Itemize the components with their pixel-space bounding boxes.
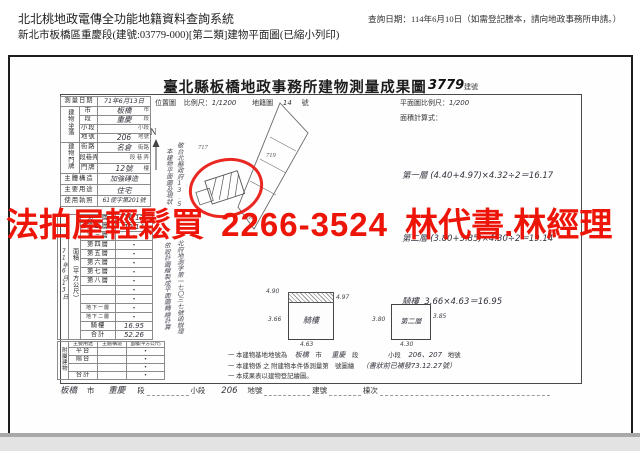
- building-number-unit: 建號: [464, 82, 478, 92]
- site-city-value: 板橋市: [98, 107, 151, 116]
- plan-arcade: 騎樓: [288, 301, 334, 340]
- floor-label: 第六層: [81, 259, 116, 268]
- floor-label: 第八層: [81, 277, 116, 286]
- building-descriptor-table: 測量日期 71年6月13日 建物坐落 市 板橋市 段 重慶段 小段 小段 地號 …: [60, 96, 151, 207]
- use-value: 住宅: [98, 185, 151, 196]
- north-label: N: [150, 127, 157, 137]
- red-ad-watermark: 法拍屋輕鬆買 2266-3524 林代書.林經理: [6, 198, 638, 246]
- floor-label: [81, 295, 116, 304]
- floor-value: ・: [116, 313, 153, 322]
- watermark-text-left: 法拍屋輕鬆買: [6, 206, 204, 243]
- document-line: 新北市板橋區重慶段(建號:03779-000)[第二類]建物平面圖(已縮小列印): [18, 27, 339, 42]
- plan-second-dim-left: 3.80: [372, 316, 385, 323]
- footer-unit-label: 棟次: [363, 386, 378, 395]
- parcel-number-1: 717: [198, 144, 209, 151]
- parcel-tick: [260, 159, 286, 173]
- parcel-tick: [270, 137, 296, 151]
- survey-date-label: 測量日期: [61, 97, 98, 107]
- building-number: 3779: [428, 78, 464, 93]
- footer-parcel-unit: 地號: [247, 386, 262, 395]
- floor-label: 第七層: [81, 268, 116, 277]
- annex-header-area: 面積(平方公尺): [127, 342, 165, 348]
- door-number-label: 門牌: [79, 163, 98, 174]
- plan-second-floor-label: 第二層: [392, 317, 430, 327]
- plan-scale-label: 平面圖比例尺：: [400, 99, 449, 107]
- area-formula-label: 面積計算式：: [400, 113, 442, 123]
- footer-blank-line: [329, 387, 361, 396]
- site-group-label: 建物坐落: [61, 107, 80, 143]
- plan-arcade-dim-bottom: 4.63: [300, 341, 313, 348]
- annex-use: [69, 364, 98, 372]
- floor-label: 地下一層: [81, 304, 116, 313]
- plan-second-dim-right: 3.85: [433, 313, 446, 320]
- note-line-1: 一 本建物基地地號為 板橋 市 重慶 段 小段 206、207 地號: [228, 350, 460, 361]
- footer-parcel-value: 206: [221, 386, 237, 396]
- site-section-label: 段: [79, 115, 98, 124]
- door-group-label: 建物門牌: [61, 142, 80, 174]
- structure-value: 加強磚造: [98, 174, 151, 185]
- annex-structure: [98, 348, 127, 356]
- footer-blank-line: [264, 387, 310, 396]
- floor-value: ・: [116, 250, 153, 259]
- footer-blank-line: [380, 387, 550, 396]
- floor-label: 第五層: [81, 250, 116, 259]
- note-line-3: 一 本成果表以建物登記繪圖。: [228, 372, 460, 382]
- footer-blank-line: [147, 387, 189, 396]
- scanned-document-page: 北北桃地政電傳全功能地籍資料查詢系統 查詢日期：114年6月10日（如需登記謄本…: [0, 0, 640, 451]
- footer-section-value: 重慶: [108, 386, 125, 396]
- floor-value: ・: [116, 259, 153, 268]
- site-parcel-label: 地號: [79, 133, 98, 142]
- annex-structure: [98, 364, 127, 372]
- annex-area: ・: [127, 372, 165, 380]
- site-section-value: 重慶段: [98, 115, 151, 124]
- annex-area: ・: [127, 364, 165, 372]
- door-lane-value: 段 巷 弄: [98, 153, 151, 164]
- footer-building-no-unit: 建號: [312, 386, 327, 395]
- site-parcel-value: 206地號: [98, 133, 151, 142]
- footer-locator-row: 板橋 市 重慶 段 小段 206 地號 建號 棟次: [60, 384, 550, 396]
- floor-value: 52.26: [116, 331, 153, 340]
- footer-section-unit: 段: [137, 386, 145, 395]
- footer-city-value: 板橋: [60, 386, 77, 396]
- annex-structure: [98, 356, 127, 364]
- viewer-background: [0, 437, 640, 451]
- plan-second-dim-bottom: 4.30: [400, 341, 413, 348]
- annex-vertical-label: 附屬建物: [58, 342, 69, 380]
- note-line-2: 一 本建物係 之 附建物本件係測量第 號圖繪 （書狀前已補發73.12.27號）: [228, 361, 460, 372]
- floor-label: 騎樓: [81, 322, 116, 331]
- annex-use: 陽台: [69, 356, 98, 364]
- watermark-phone-number: 2266-3524: [221, 206, 388, 243]
- formula-floor1: 第一層 (4.40+4.97)×4.32÷2＝16.17: [402, 166, 553, 187]
- door-lane-label: 段巷弄: [79, 153, 98, 164]
- use-label: 主要用途: [61, 185, 98, 196]
- site-city-label: 市: [79, 107, 98, 116]
- floor-label: 合計: [81, 331, 116, 340]
- query-date: 查詢日期：114年6月10日（如需登記謄本，請向地政事務所申請。）: [368, 13, 621, 25]
- plan-scale-row: 平面圖比例尺：1/200: [400, 98, 469, 108]
- floor-value: ・: [116, 295, 153, 304]
- door-street-value: 名倉街路: [98, 142, 151, 153]
- floor-label: [81, 286, 116, 295]
- annex-area: ・: [127, 356, 165, 364]
- plan-second-floor: 第二層: [391, 304, 431, 340]
- plan-arcade-dim-left: 3.66: [268, 316, 281, 323]
- system-title: 北北桃地政電傳全功能地籍資料查詢系統: [18, 10, 234, 27]
- vertical-note-drawing: 依設計圖繪製成平面圖轉繪計算: [162, 242, 169, 372]
- plan-arcade-label: 騎樓: [289, 314, 333, 325]
- door-number-value: 12號樓: [98, 163, 151, 174]
- annex-use: 合計: [69, 372, 98, 380]
- annex-area: ・: [127, 348, 165, 356]
- floor-value: ・: [116, 304, 153, 313]
- plan-arcade-dim-right: 4.97: [336, 294, 349, 301]
- site-subsection-label: 小段: [79, 124, 98, 133]
- watermark-text-right: 林代書.林經理: [405, 206, 612, 243]
- site-subsection-value: 小段: [98, 124, 151, 133]
- floor-value: ・: [116, 286, 153, 295]
- floor-value: 16.95: [116, 322, 153, 331]
- floor-label: 地下二層: [81, 313, 116, 322]
- annex-use: 平台: [69, 348, 98, 356]
- vertical-note-letter-no: 北府地測字第一七〇三七號函辦理: [175, 240, 182, 370]
- footer-city-unit: 市: [87, 386, 95, 395]
- parcel-number-2: 719: [266, 152, 277, 159]
- annex-structure: [98, 372, 127, 380]
- survey-date-value: 71年6月13日: [98, 97, 151, 107]
- plan-arcade-canopy: [288, 292, 334, 303]
- plan-arcade-dim-top: 4.90: [266, 288, 279, 295]
- form-notes: 一 本建物基地地號為 板橋 市 重慶 段 小段 206、207 地號 一 本建物…: [228, 350, 460, 382]
- door-street-label: 街路: [79, 142, 98, 153]
- annex-table: 附屬建物 主要用途 主體構造 面積(平方公尺) 平台・ 陽台・ ・ 合計・: [57, 341, 165, 380]
- structure-label: 主體構造: [61, 174, 98, 185]
- footer-subsection-unit: 小段: [190, 386, 205, 395]
- floor-value: ・: [116, 268, 153, 277]
- floor-value: ・: [116, 277, 153, 286]
- plan-scale-value: 1/200: [449, 99, 469, 107]
